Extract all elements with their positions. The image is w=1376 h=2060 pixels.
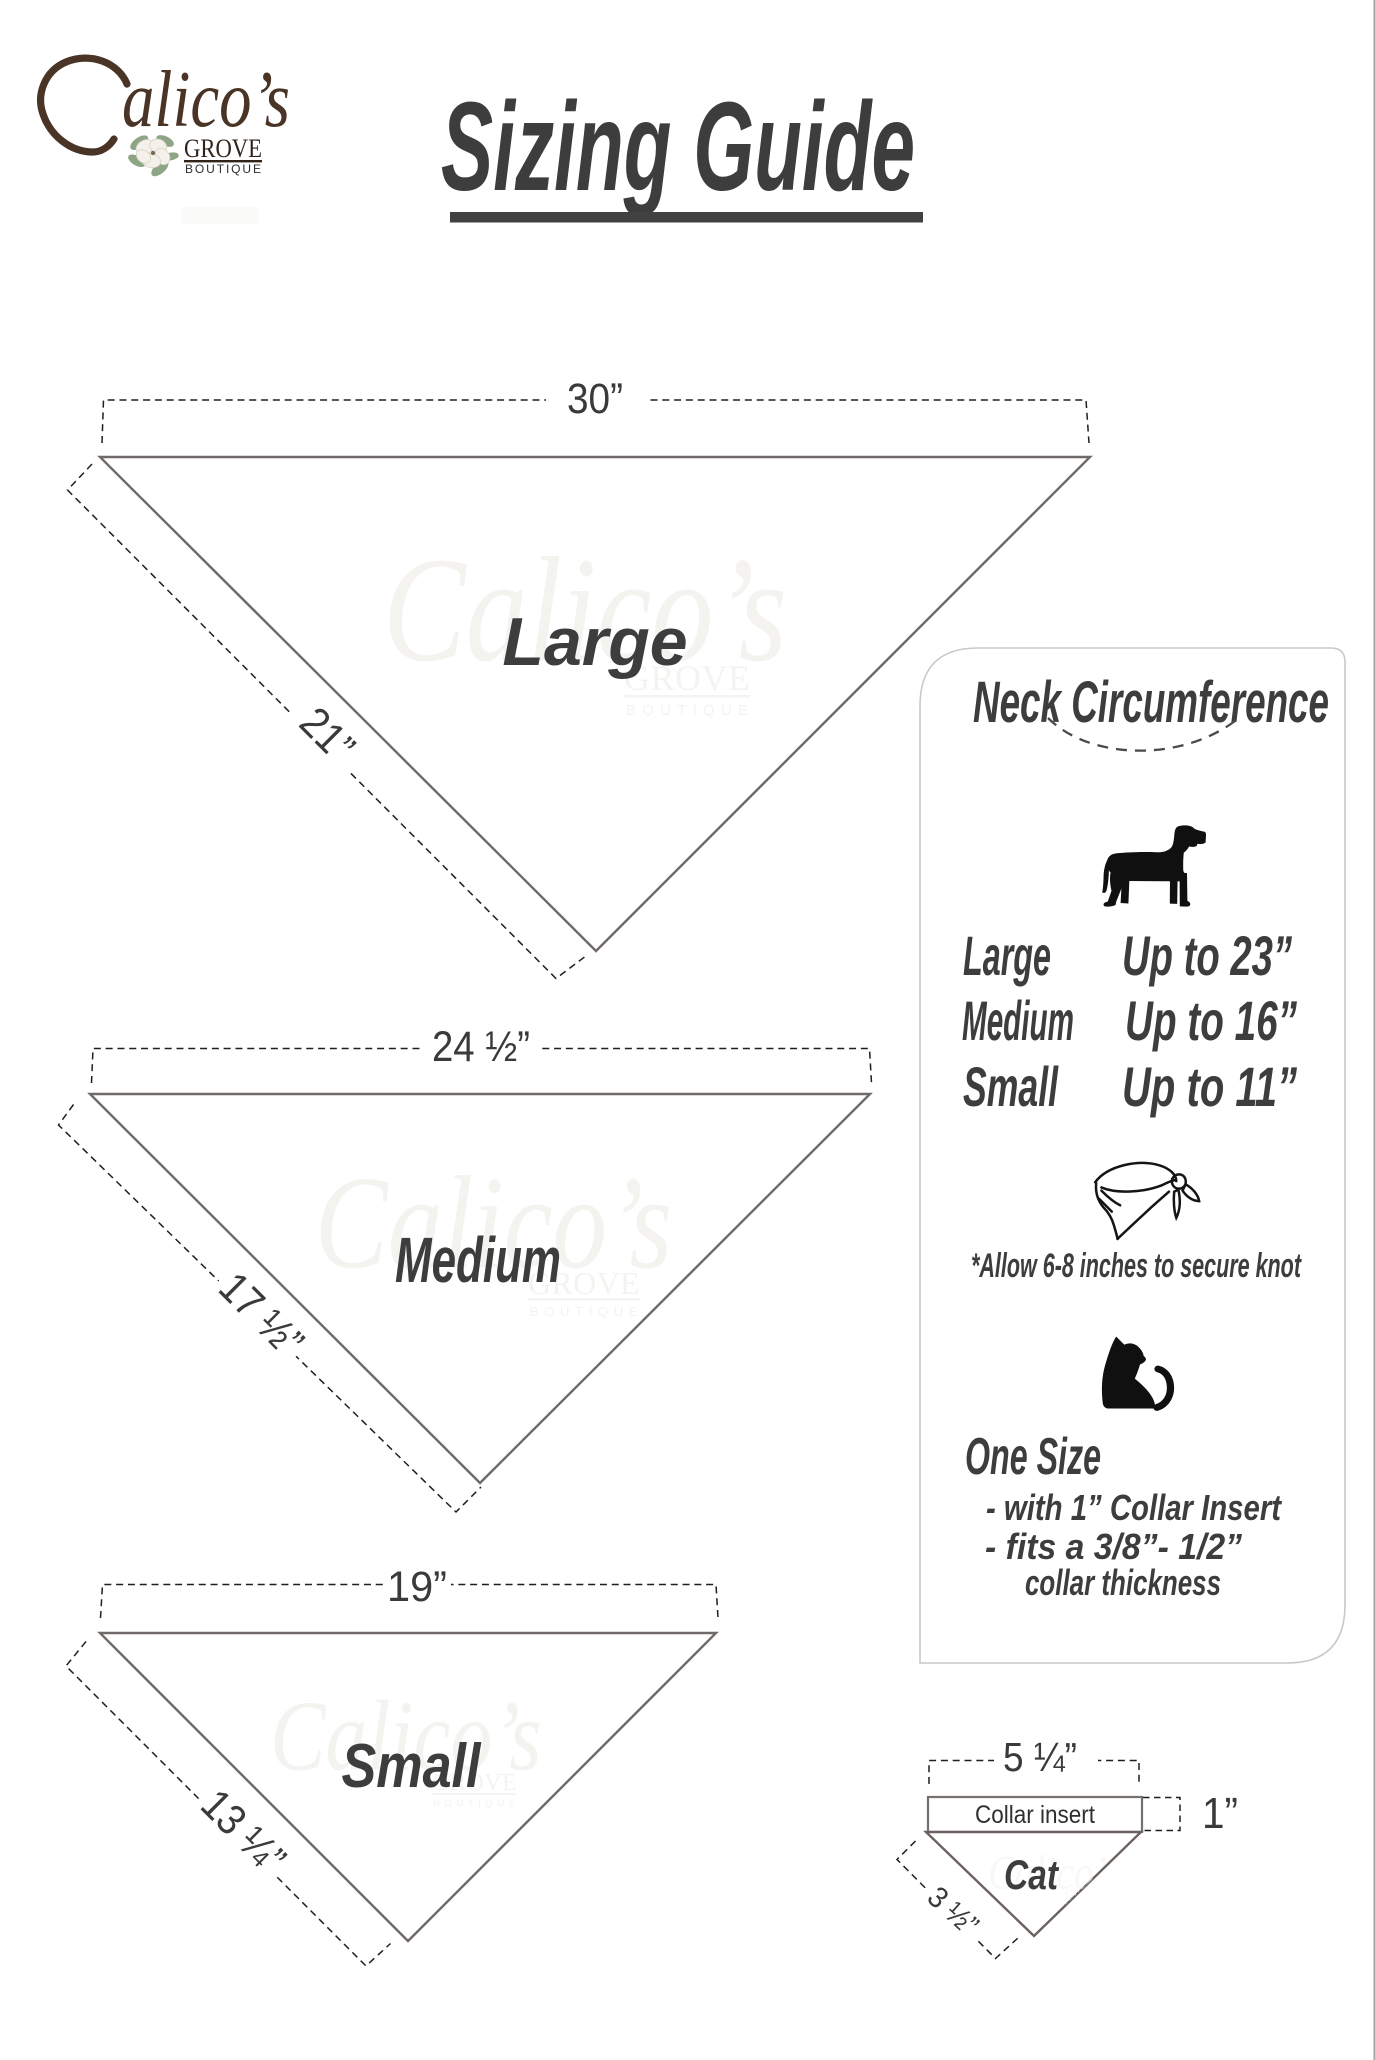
svg-text:alico’s: alico’s bbox=[122, 56, 290, 144]
svg-text:Up to 23”: Up to 23” bbox=[1122, 924, 1292, 987]
svg-text:BOUTIQUE: BOUTIQUE bbox=[185, 162, 261, 176]
svg-text:Large: Large bbox=[502, 604, 687, 680]
svg-text:One Size: One Size bbox=[965, 1428, 1101, 1486]
svg-text:*Allow 6-8 inches to secure kn: *Allow 6-8 inches to secure knot bbox=[971, 1247, 1302, 1285]
svg-text:Neck Circumference: Neck Circumference bbox=[973, 670, 1329, 735]
svg-text:19”: 19” bbox=[387, 1563, 447, 1611]
svg-text:Medium: Medium bbox=[395, 1224, 561, 1296]
svg-text:Large: Large bbox=[963, 924, 1051, 987]
svg-text:Up to 16”: Up to 16” bbox=[1125, 989, 1297, 1052]
svg-text:24 ½”: 24 ½” bbox=[432, 1023, 530, 1071]
svg-text:GROVE: GROVE bbox=[184, 134, 262, 163]
svg-text:30”: 30” bbox=[567, 375, 623, 423]
svg-text:collar thickness: collar thickness bbox=[1025, 1562, 1221, 1603]
svg-text:- fits a 3/8”- 1/2”: - fits a 3/8”- 1/2” bbox=[985, 1526, 1242, 1567]
svg-text:Small: Small bbox=[342, 1732, 482, 1801]
svg-text:5 ¼”: 5 ¼” bbox=[1003, 1734, 1077, 1780]
svg-text:Collar insert: Collar insert bbox=[975, 1801, 1095, 1829]
svg-text:Sizing Guide: Sizing Guide bbox=[441, 76, 915, 217]
svg-text:Cat: Cat bbox=[1004, 1851, 1060, 1898]
svg-text:Small: Small bbox=[963, 1055, 1059, 1118]
svg-text:Medium: Medium bbox=[962, 989, 1074, 1052]
svg-text:Up to 11”: Up to 11” bbox=[1122, 1055, 1297, 1118]
svg-text:- with 1” Collar Insert: - with 1” Collar Insert bbox=[986, 1487, 1283, 1528]
svg-text:1”: 1” bbox=[1202, 1789, 1238, 1838]
